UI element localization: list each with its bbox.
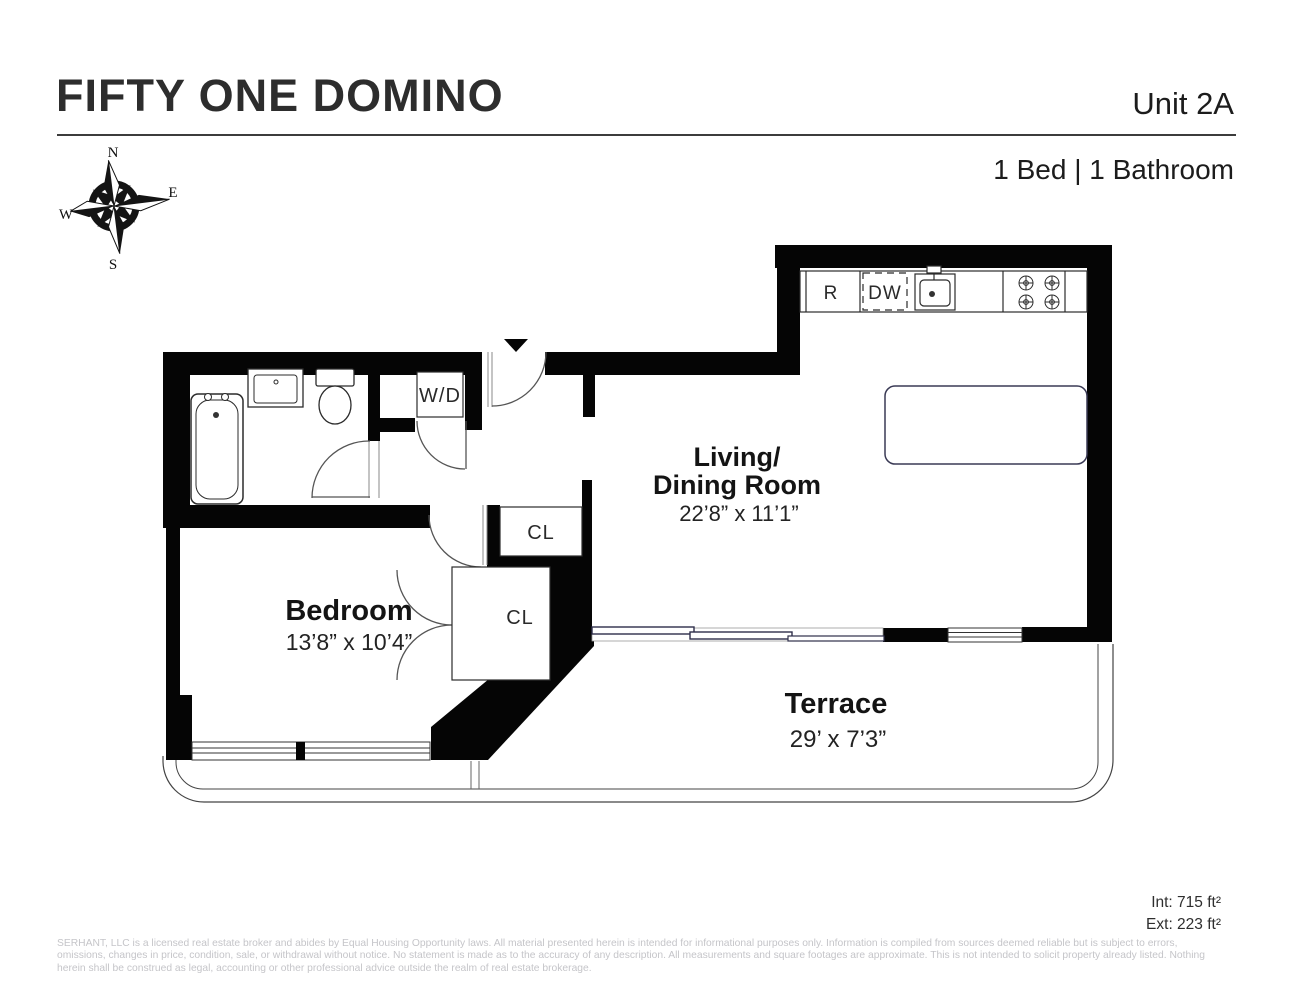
burner-icon	[1045, 295, 1059, 309]
sliding-door-panel	[690, 632, 792, 639]
toilet-tank	[316, 369, 354, 386]
vanity-faucet	[274, 380, 278, 384]
compass-star	[65, 154, 176, 259]
entry-door-arc	[492, 352, 546, 406]
wall-living-bottom-a	[883, 628, 948, 642]
living-room-label-line2: Dining Room	[653, 470, 821, 500]
compass-north-label: N	[108, 145, 119, 161]
compass-south-label: S	[109, 257, 117, 273]
exterior-area: Ext: 223 ft²	[1146, 914, 1221, 936]
wall-kitchen-top	[775, 245, 1112, 268]
kitchen-counter	[800, 266, 1087, 464]
terrace-outer-line	[163, 644, 1113, 802]
walls	[163, 245, 1112, 760]
closet-upper-label: CL	[527, 522, 555, 544]
wall-laundry-south	[373, 418, 415, 432]
washer-dryer-label: W/D	[419, 385, 461, 407]
wall-living-west	[582, 480, 592, 630]
burner-icon	[1019, 276, 1033, 290]
refrigerator-label: R	[824, 283, 839, 304]
bathroom-fixtures	[191, 369, 354, 504]
wall-bedroom-left-lower	[166, 695, 192, 760]
bedroom-window-mullion	[296, 742, 305, 760]
bedroom-door-arc	[429, 515, 481, 567]
bathroom-door-arc	[312, 441, 370, 498]
wall-bedroom-top	[163, 505, 430, 528]
wall-laundry-east	[465, 352, 482, 430]
terrace-label: Terrace	[785, 688, 888, 720]
burner-icon	[1019, 295, 1033, 309]
kitchen-faucet	[927, 266, 941, 273]
living-room-dims: 22’8” x 11’1”	[679, 501, 798, 526]
wall-entry-stub	[583, 370, 595, 417]
bedroom-dims: 13’8” x 10’4”	[286, 629, 413, 655]
wall-closet1-bottom	[487, 556, 592, 567]
burner-icon	[1045, 276, 1059, 290]
vanity-sink	[254, 375, 297, 403]
interior-area: Int: 715 ft²	[1146, 892, 1221, 914]
terrace-dims: 29’ x 7’3”	[790, 726, 887, 753]
dishwasher-label: DW	[868, 283, 902, 304]
disclaimer-line: herein shall be construed as legal, acco…	[57, 963, 1242, 975]
terrace-inner-line	[176, 644, 1098, 789]
living-room-label-line1: Living/	[694, 442, 781, 472]
toilet-bowl	[319, 386, 351, 424]
closet-lower-box	[452, 567, 550, 680]
square-footage: Int: 715 ft² Ext: 223 ft²	[1146, 892, 1221, 936]
sliding-door-panel	[592, 627, 694, 634]
compass-rose: N E S W	[59, 145, 178, 273]
tub-drain	[213, 412, 219, 418]
kitchen-island	[885, 386, 1087, 464]
living-window	[948, 628, 1022, 642]
compass-west-label: W	[59, 207, 74, 223]
kitchen-sink-drain	[929, 291, 935, 297]
sliding-door-panel	[788, 636, 884, 641]
compass-east-label: E	[168, 185, 177, 201]
tub-faucet-handle	[205, 394, 212, 401]
bedroom-window	[192, 742, 430, 760]
tub-faucet-handle	[222, 394, 229, 401]
laundry-door-arc	[417, 421, 465, 469]
wall-living-bottom-b	[1022, 627, 1112, 642]
entry-marker-triangle	[504, 339, 528, 352]
bedroom-label: Bedroom	[285, 595, 412, 627]
disclaimer-line: omissions, changes in price, condition, …	[57, 950, 1242, 962]
legal-disclaimer: SERHANT, LLC is a licensed real estate b…	[57, 938, 1242, 975]
terrace-boundary	[163, 644, 1113, 802]
closet-lower-label: CL	[506, 607, 534, 629]
wall-right	[1087, 268, 1112, 642]
wall-kitchen-connector	[777, 268, 800, 356]
kitchen-sink-basin	[920, 280, 950, 306]
wall-left-upper	[163, 352, 190, 528]
disclaimer-line: SERHANT, LLC is a licensed real estate b…	[57, 938, 1242, 950]
floor-plan: N E S W	[0, 0, 1294, 1000]
wall-bedroom-left	[166, 505, 180, 697]
